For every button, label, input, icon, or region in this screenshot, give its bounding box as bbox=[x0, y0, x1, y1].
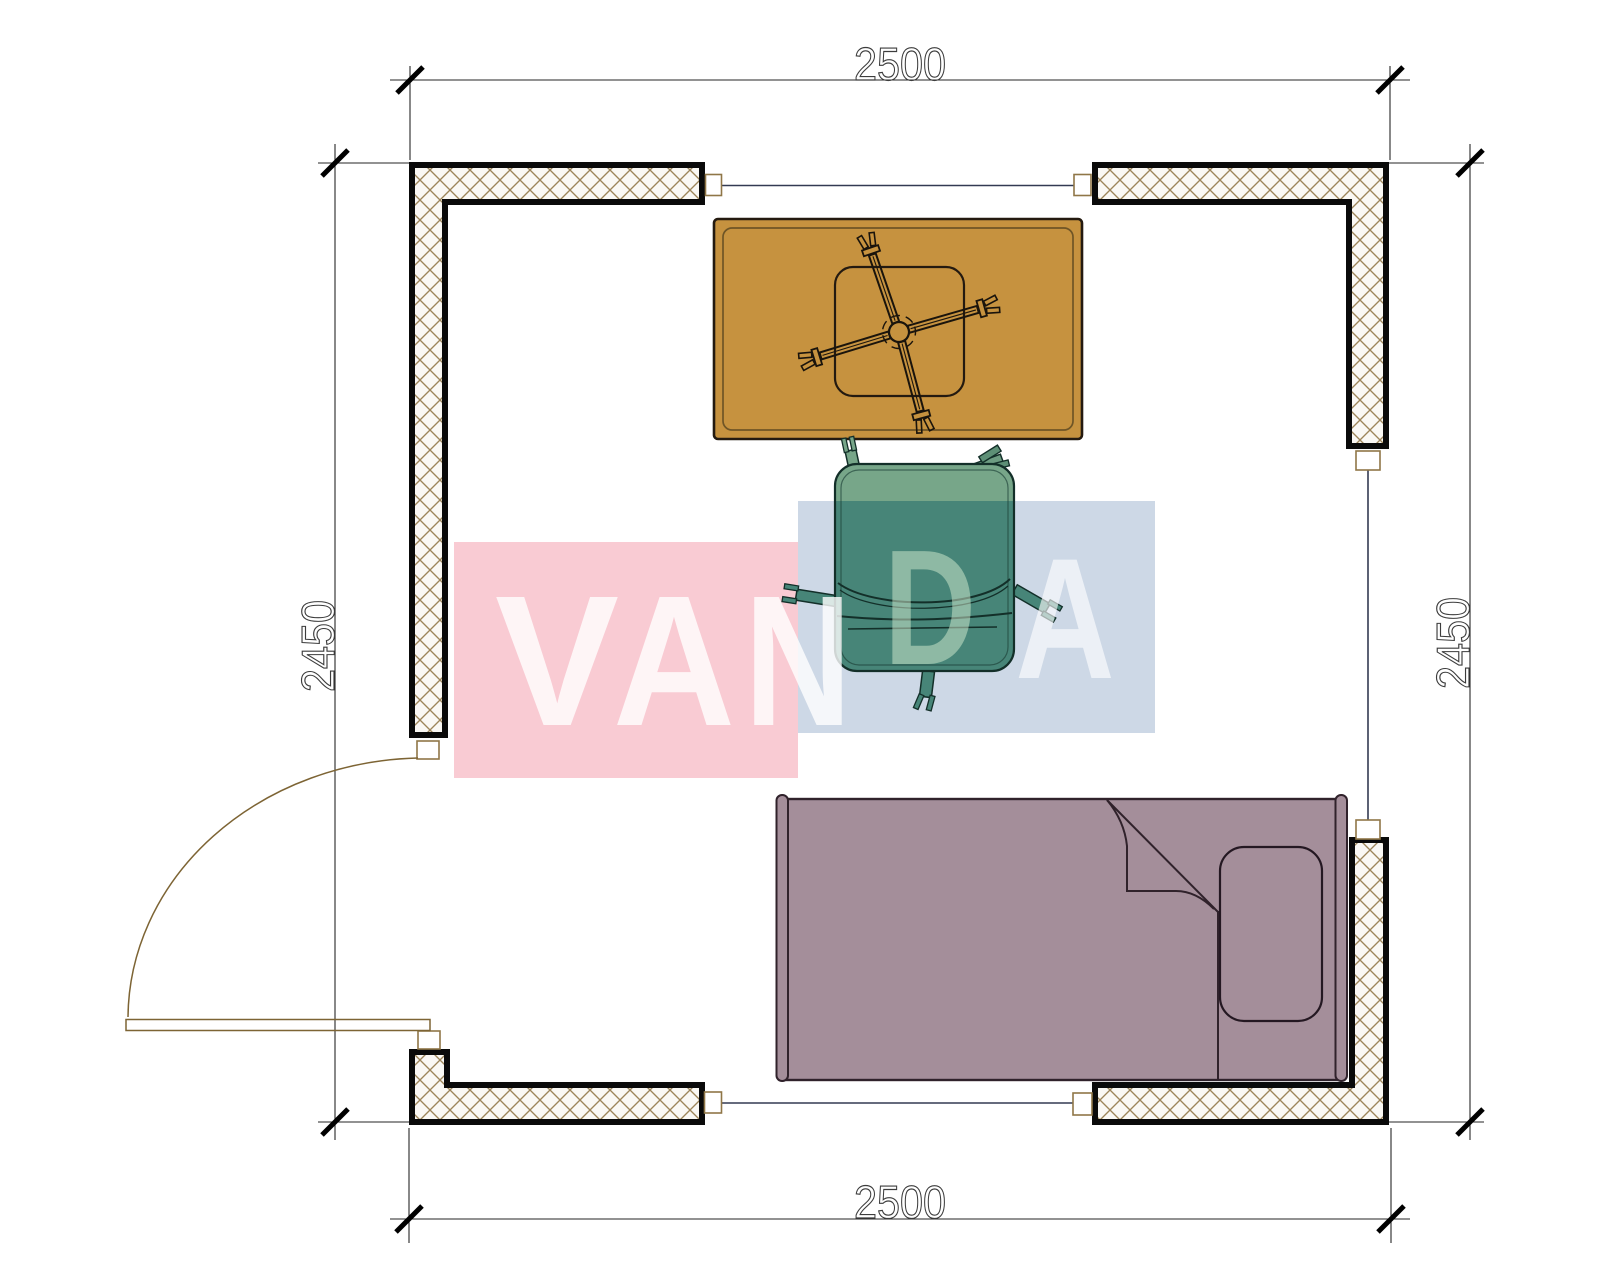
svg-text:2500: 2500 bbox=[854, 1177, 946, 1229]
svg-text:A: A bbox=[613, 557, 735, 765]
svg-text:D: D bbox=[884, 517, 976, 700]
svg-text:A: A bbox=[1015, 523, 1114, 715]
svg-text:2450: 2450 bbox=[1428, 597, 1480, 689]
svg-text:2450: 2450 bbox=[293, 600, 345, 692]
svg-text:V: V bbox=[495, 558, 619, 765]
svg-text:N: N bbox=[744, 557, 851, 765]
svg-text:2500: 2500 bbox=[854, 39, 946, 91]
